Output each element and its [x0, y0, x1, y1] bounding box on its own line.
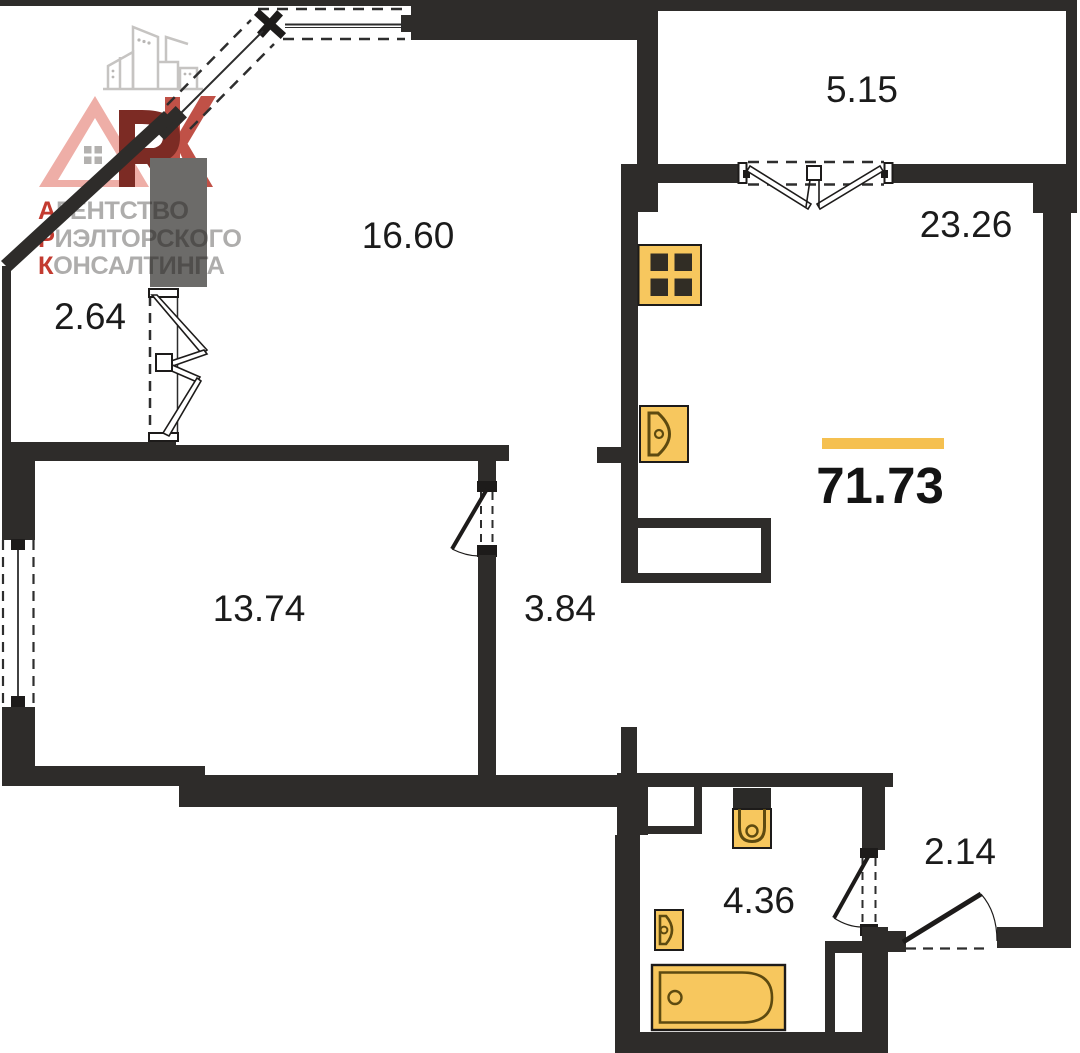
svg-text:16.60: 16.60: [362, 215, 455, 256]
svg-text:71.73: 71.73: [816, 457, 944, 514]
svg-text:4.36: 4.36: [723, 880, 795, 921]
svg-text:23.26: 23.26: [920, 204, 1013, 245]
svg-text:2.64: 2.64: [54, 296, 126, 337]
svg-text:РИЭЛТОРСКОГО: РИЭЛТОРСКОГО: [38, 225, 242, 253]
svg-text:2.14: 2.14: [924, 831, 996, 872]
svg-text:КОНСАЛТИНГА: КОНСАЛТИНГА: [38, 252, 225, 280]
svg-text:13.74: 13.74: [213, 588, 306, 629]
svg-text:3.84: 3.84: [524, 588, 596, 629]
svg-text:5.15: 5.15: [826, 69, 898, 110]
